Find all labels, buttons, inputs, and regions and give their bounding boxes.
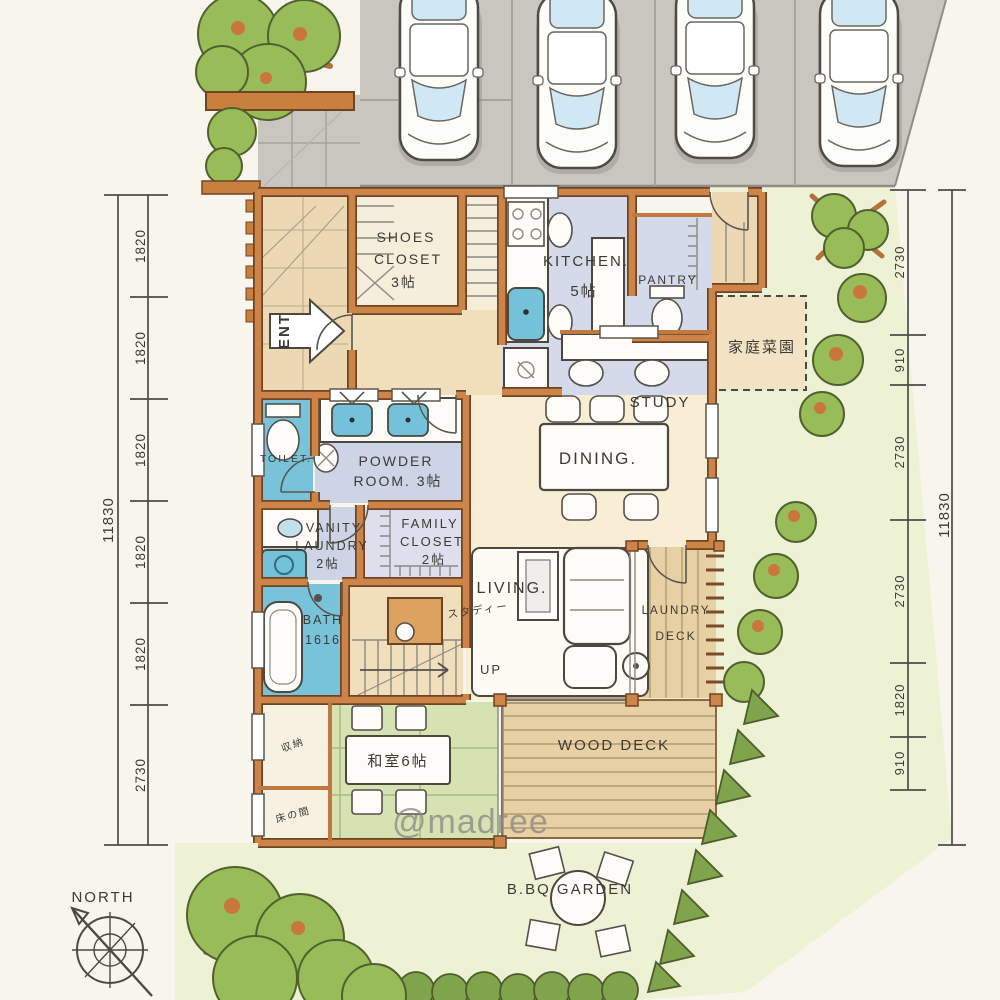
- dining-window: [706, 478, 718, 532]
- bbq-table: [551, 871, 605, 925]
- kitchen-size: 5帖: [570, 283, 597, 300]
- dim-left-seg: 1820: [133, 637, 148, 671]
- dim-left-seg: 1820: [133, 229, 148, 263]
- toilet-window: [252, 424, 264, 476]
- kitchen-window: [504, 186, 558, 198]
- entrance-label: ENT: [276, 313, 293, 349]
- study-chair: [569, 360, 603, 386]
- stove: [508, 202, 544, 246]
- shoes-closet-label: SHOES: [376, 229, 435, 245]
- laundry-deck-label: DECK: [655, 629, 696, 643]
- sofa: [564, 548, 630, 644]
- dim-right-seg: 910: [892, 751, 907, 776]
- north-label: NORTH: [71, 889, 134, 906]
- dim-left-seg: 1820: [133, 535, 148, 569]
- bbq-garden-label: B.BQ GARDEN: [507, 881, 633, 898]
- bath-size: 1616: [305, 633, 341, 647]
- study-chair: [635, 360, 669, 386]
- dim-right-seg: 2730: [892, 246, 907, 279]
- wood-deck-label: WOOD DECK: [558, 737, 670, 754]
- up-label: UP: [480, 662, 502, 677]
- vegetable-garden-label: 家庭菜園: [728, 339, 796, 356]
- car: [533, 0, 621, 174]
- dim-left-seg: 2730: [133, 758, 148, 792]
- bath-window: [252, 612, 264, 668]
- dining-label: DINING.: [559, 449, 637, 468]
- dim-left-seg: 1820: [133, 433, 148, 467]
- living-label: LIVING.: [477, 580, 548, 597]
- kitchen-stool: [548, 213, 572, 247]
- dim-right-seg: 910: [892, 348, 907, 373]
- dim-left-seg: 1820: [133, 331, 148, 365]
- powder-label: POWDER: [359, 453, 434, 469]
- floor-plan-canvas: SHOES CLOSET 3帖 KITCHEN. 5帖 PANTRY STUDY…: [0, 0, 1000, 1000]
- study-label: STUDY: [630, 394, 691, 411]
- car: [815, 0, 903, 172]
- mudroom-floor: [712, 192, 762, 288]
- dim-right-seg: 2730: [892, 575, 907, 608]
- shoes-closet-label: CLOSET: [374, 251, 442, 267]
- vanity-label: LAUNDRY: [295, 539, 369, 553]
- car: [671, 0, 759, 164]
- dim-left-total: 11830: [100, 497, 117, 543]
- watermark: @madree: [392, 803, 549, 841]
- family-closet-size: 2帖: [422, 552, 446, 567]
- dim-right-seg: 2730: [892, 436, 907, 469]
- pantry-label: PANTRY: [638, 273, 698, 287]
- study-window: [600, 326, 658, 338]
- dim-right-total: 11830: [936, 492, 953, 538]
- shoes-closet-size: 3帖: [391, 274, 417, 290]
- dim-right-seg: 1820: [892, 684, 907, 717]
- stair-desk: [388, 598, 442, 644]
- vanity-label: VANITY: [306, 521, 362, 535]
- washer: [262, 550, 306, 581]
- hall-floor: [352, 310, 502, 395]
- powder-label: ROOM. 3帖: [353, 473, 442, 489]
- bath-label: BATH: [303, 613, 343, 627]
- pantry-toilet: [650, 286, 684, 298]
- car: [395, 0, 483, 166]
- tatami-label: 和室6帖: [367, 753, 428, 770]
- entrance-porch-floor: [258, 192, 352, 395]
- laundry-deck-label: LAUNDRY: [642, 605, 711, 617]
- kitchen-label: KITCHEN.: [543, 253, 629, 270]
- toilet-label: TOILET.: [260, 453, 312, 465]
- dining-window: [706, 404, 718, 458]
- family-closet-label: FAMILY: [401, 516, 458, 531]
- family-closet-label: CLOSET: [400, 534, 464, 549]
- sofa-chaise: [564, 646, 616, 688]
- vanity-size: 2帖: [316, 556, 339, 571]
